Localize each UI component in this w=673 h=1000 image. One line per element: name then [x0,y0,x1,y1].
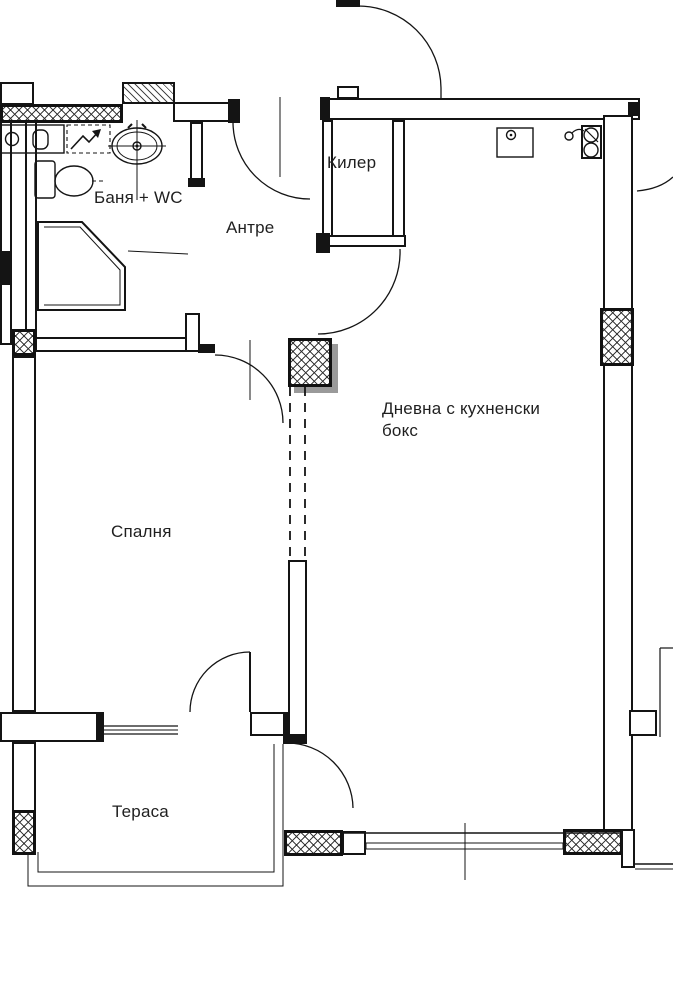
room-label-hallway: Антре [226,218,274,238]
bedroom-terrace-door-arc [190,652,250,712]
kitchen-sink-bowl-bottom [584,143,598,157]
washbasin-bowl-right [33,130,48,149]
toilet-tank [35,161,55,198]
room-label-pantry: Килер [327,153,376,173]
sink-tap-left [128,124,132,128]
kitchen-fixtures [497,126,601,158]
sink-tap-right [142,124,146,128]
sink-drain-dot [136,145,139,148]
wardrobe-outline [38,222,125,310]
entrance-door-arc [358,6,441,88]
living-terrace-door-arc [287,743,353,808]
wardrobe [38,222,188,310]
neighbor-structures [633,648,673,869]
kitchen-faucet [565,132,573,140]
toilet-bowl [55,166,93,196]
neighbor-door-arc [637,177,673,191]
room-label-bedroom: Спалня [111,522,172,542]
floor-plan: Баня + WC Антре Килер Дневна с кухненски… [0,0,673,1000]
washbasin-bowl-left [6,133,19,146]
bedroom-door-arc [215,355,283,423]
nook-shelf-line [128,251,188,254]
kitchen-hob-dot [510,134,513,137]
shower-tray [67,125,110,153]
room-label-terrace: Тераса [112,802,169,822]
room-label-living: Дневна с кухненски бокс [382,398,562,442]
room-label-bathroom: Баня + WC [94,188,183,208]
bathroom-door-arc [233,122,310,199]
pantry-door-arc [318,249,400,334]
windows [103,726,620,880]
dashed-boundary [290,387,305,560]
plan-linework [0,0,673,1000]
